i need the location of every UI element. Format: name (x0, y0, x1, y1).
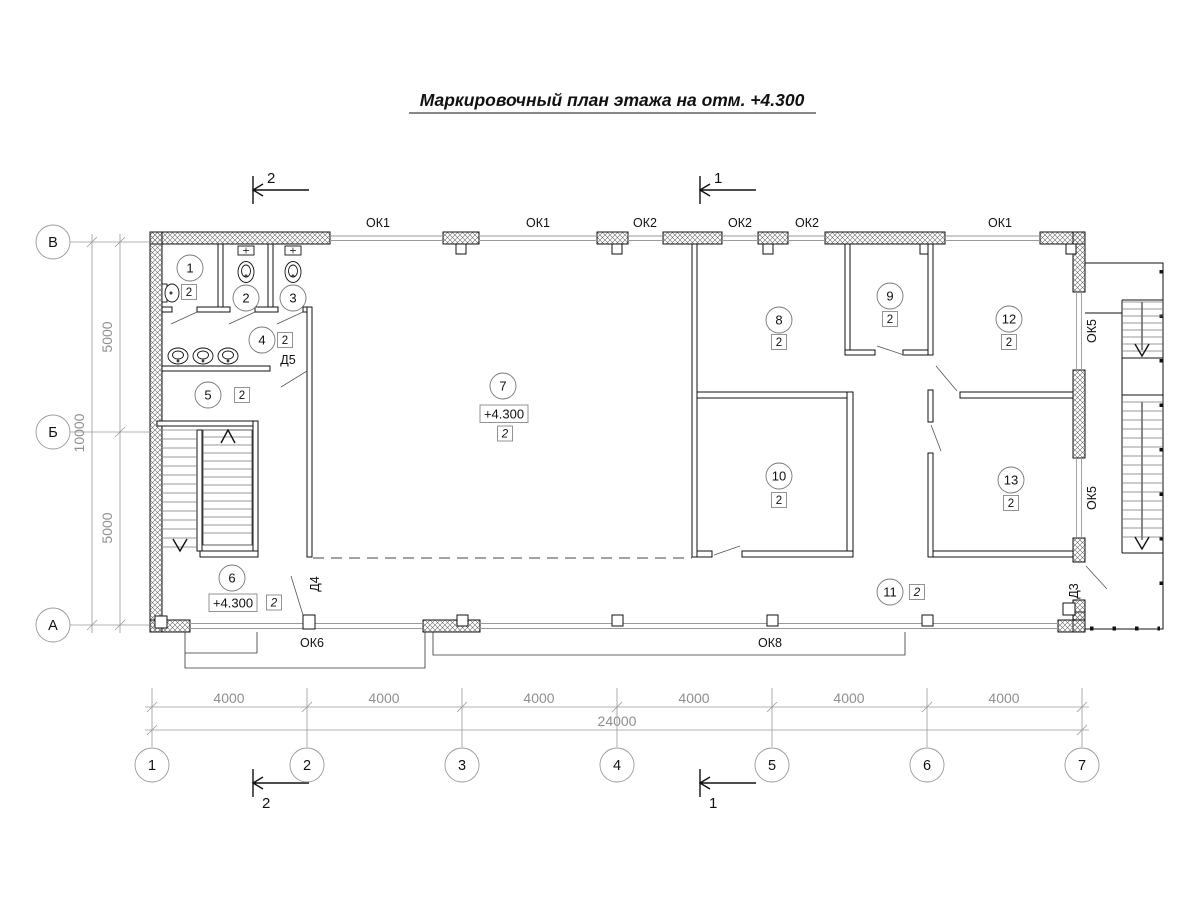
door-label-d5: Д5 (280, 353, 295, 367)
room-grade-6: 2 (270, 598, 278, 610)
axis-row-a: А (48, 618, 58, 634)
stair-down-arrow (173, 539, 187, 551)
window-label-ok2-b: ОК2 (728, 216, 752, 230)
section-label-1-bottom: 1 (709, 795, 717, 812)
room-number-6: 6 (228, 571, 235, 586)
room-marker-13: 13 2 (998, 467, 1024, 511)
room-grade-5: 2 (239, 390, 245, 402)
left-dimensions: 5000 5000 10000 (70, 234, 150, 633)
dim-24000: 24000 (598, 713, 637, 729)
room-number-3: 3 (289, 291, 296, 306)
room-grade-10: 2 (776, 495, 782, 507)
section-mark-2-top: 2 (253, 170, 309, 204)
section-label-1-top: 1 (714, 170, 722, 187)
dim-4000-4: 4000 (678, 690, 709, 706)
door-label-d4: Д4 (308, 576, 322, 591)
room-number-1: 1 (186, 261, 193, 276)
axis-row-b: Б (48, 425, 58, 441)
elevation-mark-main-hall: +4.300 (484, 407, 524, 422)
dim-4000-6: 4000 (988, 690, 1019, 706)
room-number-8: 8 (775, 313, 782, 328)
window-label-ok1-c: ОК1 (988, 216, 1012, 230)
room-number-5: 5 (204, 388, 211, 403)
bottom-dimensions: 4000 4000 4000 4000 4000 4000 24000 (145, 688, 1089, 747)
window-bay-ok8 (433, 632, 905, 655)
axis-row-v: В (48, 235, 58, 251)
stair-treads-right-flight (203, 437, 252, 533)
row-axis-bubbles: В Б А (36, 225, 70, 642)
room-marker-3: 3 (280, 285, 306, 311)
dim-5000-1: 5000 (99, 321, 115, 352)
window-label-ok8: ОК8 (758, 636, 782, 650)
axis-col-6: 6 (923, 758, 931, 774)
room-number-2: 2 (242, 291, 249, 306)
left-staircase (157, 421, 258, 557)
elevation-mark-stair-hall: +4.300 (213, 596, 253, 611)
axis-col-4: 4 (613, 758, 621, 774)
room-grade-9: 2 (887, 314, 893, 326)
dim-10000: 10000 (71, 413, 87, 452)
room-grade-13: 2 (1008, 498, 1014, 510)
toilet-fixture-2 (285, 246, 301, 283)
axis-col-7: 7 (1078, 758, 1086, 774)
room-marker-12: 12 2 (996, 306, 1022, 350)
room-grade-12: 2 (1006, 337, 1012, 349)
room-marker-5: 5 2 (195, 382, 250, 408)
dim-4000-5: 4000 (833, 690, 864, 706)
room-marker-6: 6 +4.300 2 (209, 565, 282, 612)
room-grade-11: 2 (913, 587, 921, 599)
room-grade-7: 2 (501, 429, 509, 441)
dim-4000-3: 4000 (523, 690, 554, 706)
right-stair-annex (1085, 263, 1163, 629)
axis-col-1: 1 (148, 758, 156, 774)
room-marker-8: 8 2 (766, 307, 792, 350)
facade-columns (457, 615, 933, 626)
window-label-ok2-c: ОК2 (795, 216, 819, 230)
window-label-ok1-a: ОК1 (366, 216, 390, 230)
section-mark-1-bottom: 1 (700, 769, 756, 812)
window-glazing (190, 236, 1082, 629)
section-mark-1-top: 1 (700, 170, 756, 204)
room-grade-8: 2 (776, 337, 782, 349)
stair-up-arrow (221, 430, 235, 443)
room-marker-1: 1 2 (177, 255, 203, 300)
axis-col-5: 5 (768, 758, 776, 774)
window-label-ok5-b: ОК5 (1085, 486, 1099, 510)
column-axis-bubbles: 1 2 3 4 5 6 7 (135, 748, 1099, 782)
room-marker-10: 10 2 (766, 463, 792, 508)
door-label-d3: Д3 (1067, 583, 1081, 598)
axis-col-3: 3 (458, 758, 466, 774)
room-marker-11: 11 2 (877, 579, 925, 605)
toilet-fixture-1 (238, 246, 254, 283)
window-label-ok5-a: ОК5 (1085, 319, 1099, 343)
window-label-ok2-a: ОК2 (633, 216, 657, 230)
section-label-2-top: 2 (267, 170, 275, 187)
room-number-10: 10 (772, 469, 786, 484)
window-label-ok6: ОК6 (300, 636, 324, 650)
room-marker-4: 4 2 (249, 327, 293, 353)
room-number-13: 13 (1004, 473, 1018, 488)
sink-fixtures (168, 348, 238, 364)
room-grade-1: 2 (186, 287, 192, 299)
room-number-7: 7 (499, 379, 506, 394)
floor-plan-drawing: Маркировочный план этажа на отм. +4.300 (0, 0, 1200, 900)
room-number-9: 9 (886, 289, 893, 304)
axis-col-2: 2 (303, 758, 311, 774)
dim-5000-2: 5000 (99, 512, 115, 543)
room-number-12: 12 (1002, 312, 1016, 327)
floor-plan-sheet: Маркировочный план этажа на отм. +4.300 (0, 0, 1200, 900)
dim-4000-1: 4000 (213, 690, 244, 706)
room-marker-9: 9 2 (877, 283, 903, 327)
urinal-fixture (162, 284, 179, 302)
door-labels: Д5 Д4 Д3 (280, 353, 1081, 599)
room-number-4: 4 (258, 333, 265, 348)
room-grade-4: 2 (282, 335, 288, 347)
window-labels: ОК1 ОК1 ОК2 ОК2 ОК2 ОК1 ОК5 ОК5 ОК6 ОК8 (300, 216, 1099, 650)
dim-4000-2: 4000 (368, 690, 399, 706)
room-number-11: 11 (883, 585, 897, 600)
drawing-title: Маркировочный план этажа на отм. +4.300 (409, 90, 816, 113)
window-label-ok1-b: ОК1 (526, 216, 550, 230)
room-marker-7: 7 +4.300 2 (480, 373, 528, 441)
room-marker-2: 2 (233, 285, 259, 311)
section-label-2-bottom: 2 (262, 795, 270, 812)
stair-treads-left-flight (163, 430, 197, 547)
title-text: Маркировочный план этажа на отм. +4.300 (420, 90, 805, 110)
